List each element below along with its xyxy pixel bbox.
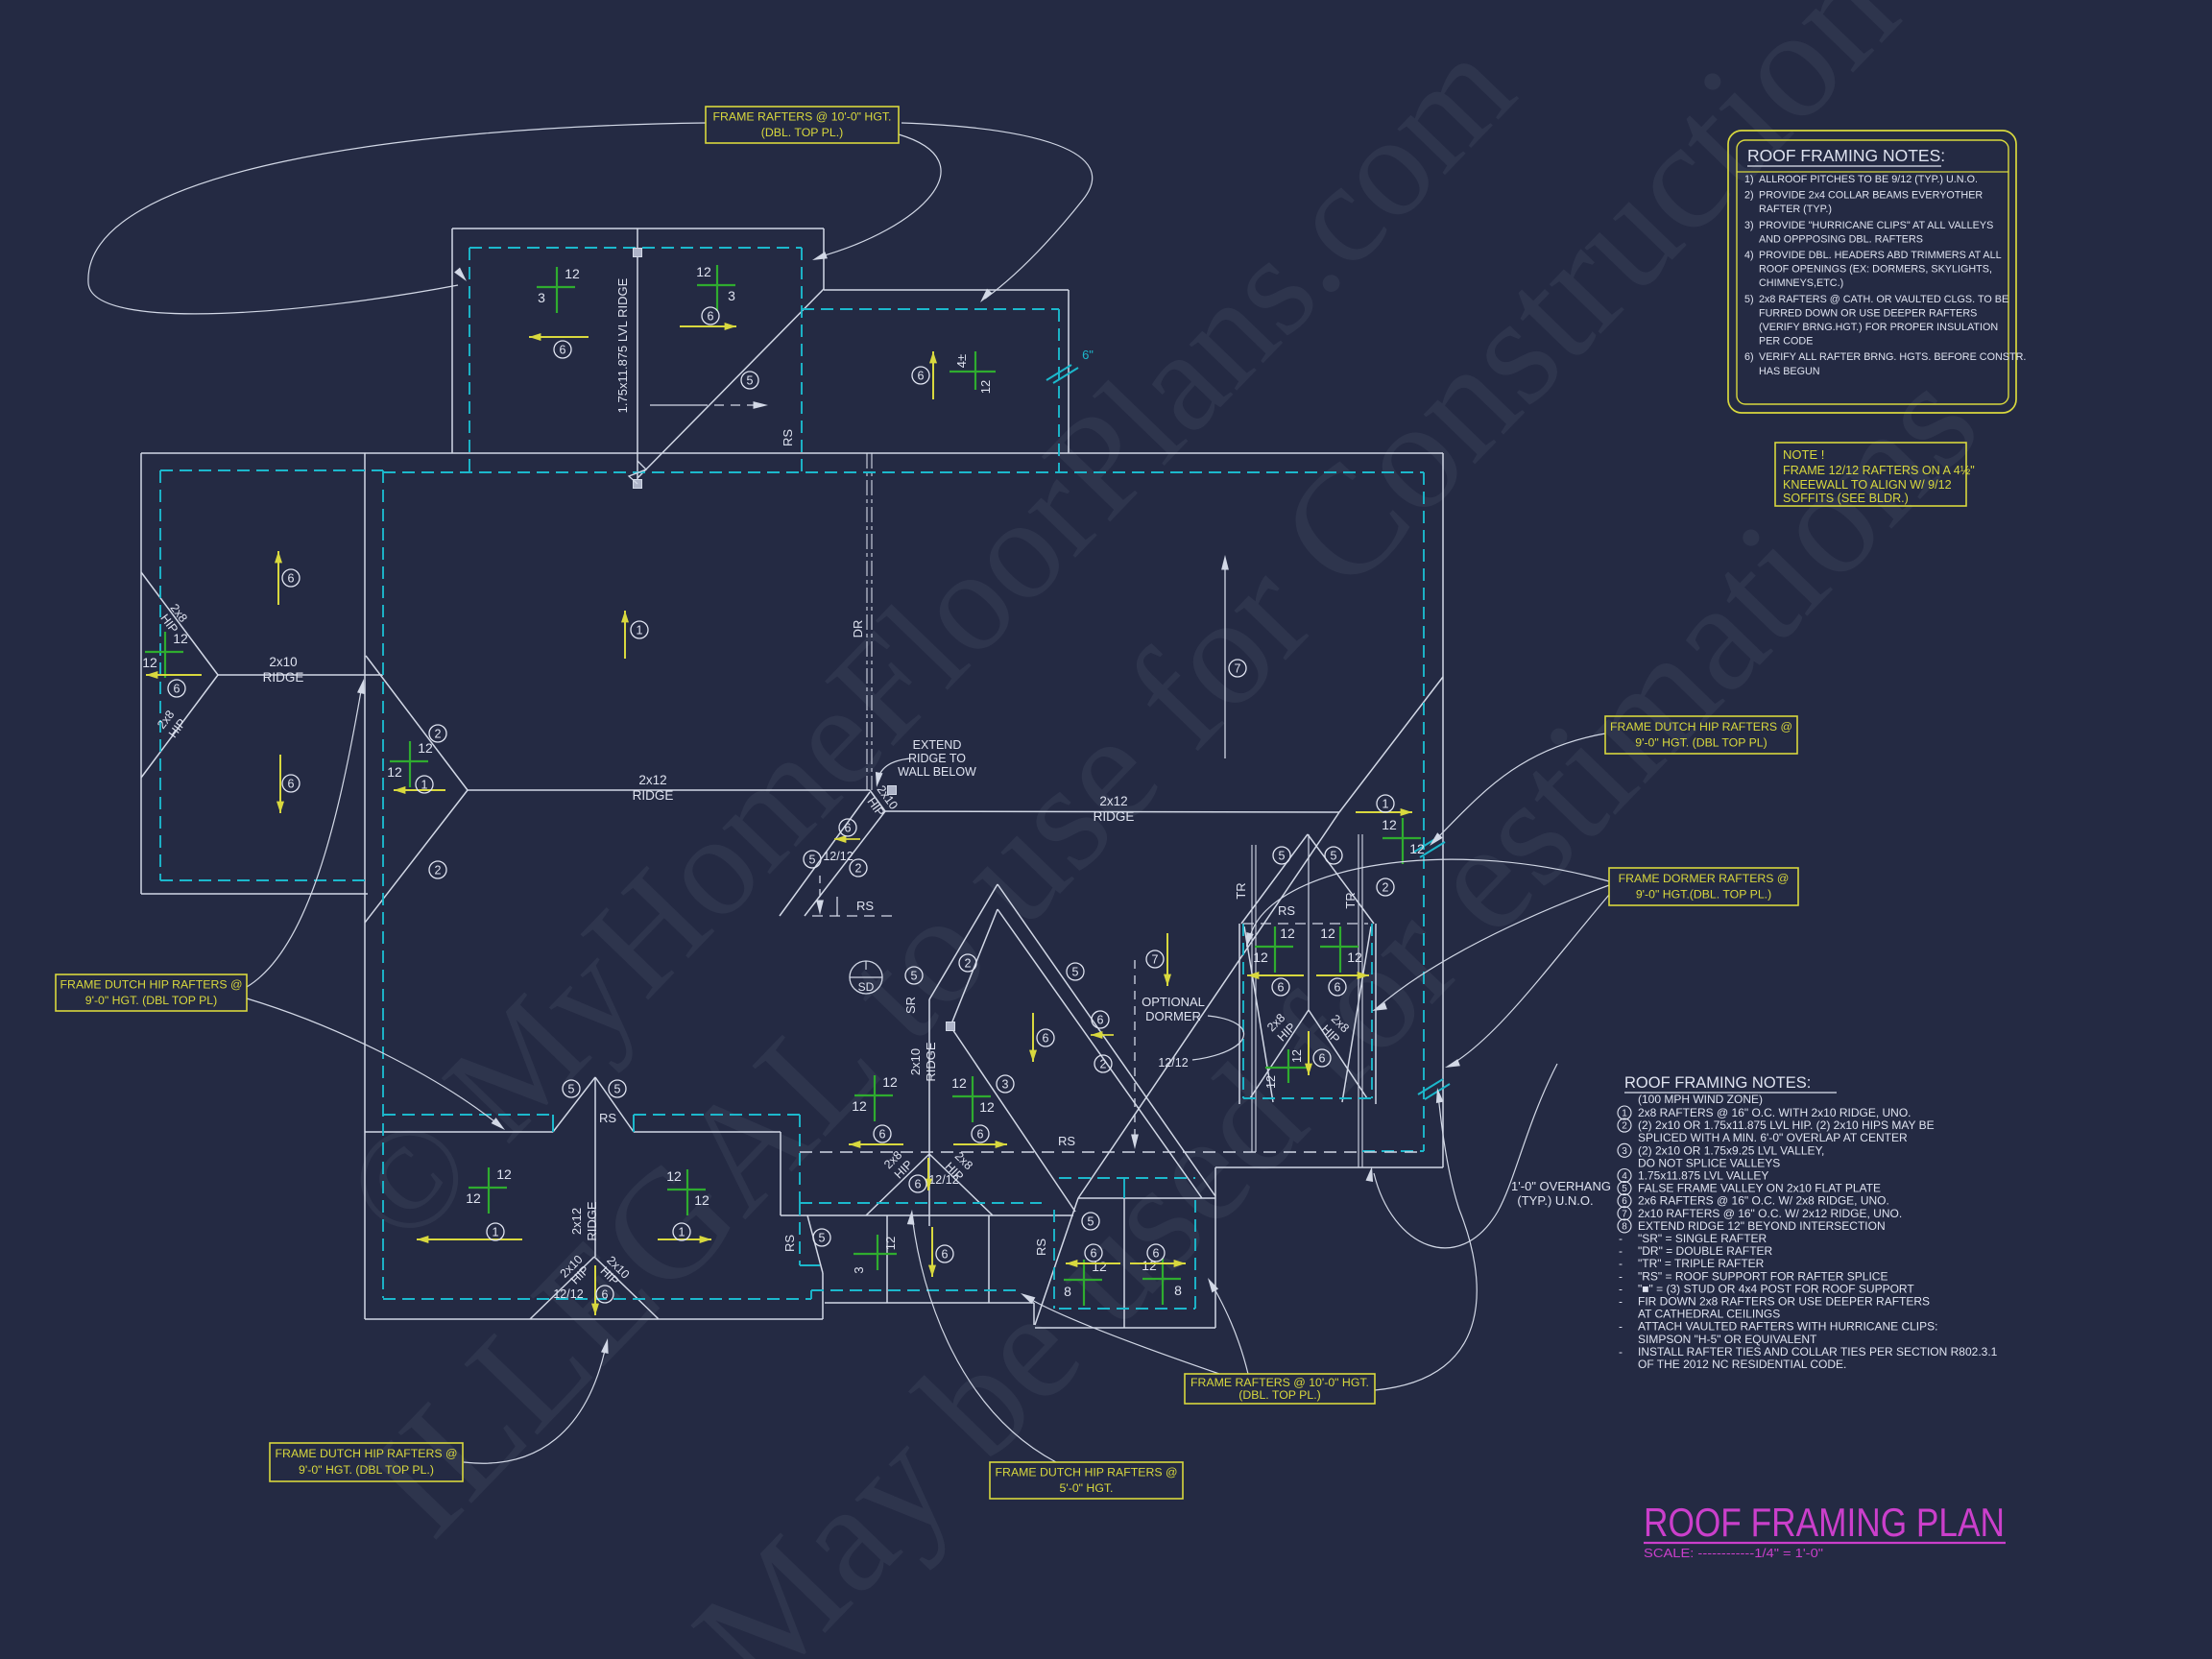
svg-text:3: 3 (538, 290, 545, 305)
svg-text:12: 12 (883, 1237, 898, 1250)
svg-text:EXTEND: EXTEND (913, 738, 962, 752)
svg-text:1): 1) (1744, 174, 1754, 185)
svg-text:RS: RS (781, 429, 795, 446)
svg-text:RIDGE: RIDGE (633, 788, 674, 803)
svg-text:SIMPSON "H-5" OR EQUIVALENT: SIMPSON "H-5" OR EQUIVALENT (1638, 1333, 1817, 1346)
svg-text:RIDGE: RIDGE (924, 1042, 938, 1082)
svg-text:6: 6 (942, 1248, 949, 1262)
svg-text:6): 6) (1744, 351, 1754, 363)
svg-text:12: 12 (1320, 926, 1335, 941)
svg-text:PROVIDE DBL. HEADERS ABD TRIMM: PROVIDE DBL. HEADERS ABD TRIMMERS AT ALL (1759, 250, 2002, 261)
svg-text:CHIMNEYS,ETC.): CHIMNEYS,ETC.) (1759, 277, 1843, 289)
svg-text:RS: RS (1034, 1238, 1048, 1256)
svg-text:FRAME DORMER RAFTERS @: FRAME DORMER RAFTERS @ (1619, 872, 1790, 885)
svg-text:12: 12 (1290, 1049, 1304, 1063)
svg-text:2: 2 (435, 728, 442, 741)
svg-text:12: 12 (696, 264, 711, 279)
svg-text:SD: SD (858, 980, 875, 994)
svg-text:(100 MPH WIND ZONE): (100 MPH WIND ZONE) (1638, 1093, 1763, 1106)
svg-text:FRAME RAFTERS @ 10'-0" HGT.: FRAME RAFTERS @ 10'-0" HGT. (713, 110, 892, 124)
svg-text:2): 2) (1744, 190, 1754, 202)
svg-text:FALSE FRAME VALLEY ON 2x10 FLA: FALSE FRAME VALLEY ON 2x10 FLAT PLATE (1638, 1182, 1881, 1195)
svg-text:5: 5 (1331, 850, 1337, 863)
svg-text:2: 2 (1622, 1121, 1627, 1132)
svg-text:6: 6 (918, 370, 925, 383)
svg-text:6: 6 (288, 778, 295, 791)
svg-text:SR: SR (903, 997, 918, 1014)
svg-text:AND OPPPOSING DBL. RAFTERS: AND OPPPOSING DBL. RAFTERS (1759, 233, 1923, 245)
svg-text:12: 12 (1409, 841, 1425, 856)
svg-text:PER CODE: PER CODE (1759, 336, 1813, 348)
svg-text:KNEEWALL TO ALIGN W/ 9/12: KNEEWALL TO ALIGN W/ 9/12 (1783, 478, 1952, 492)
svg-text:3: 3 (1622, 1146, 1627, 1157)
svg-text:12: 12 (1382, 817, 1397, 832)
svg-text:"RS" = ROOF SUPPORT FOR RAFT: "RS" = ROOF SUPPORT FOR RAFTER SPLICE (1638, 1269, 1887, 1283)
svg-text:2x10: 2x10 (908, 1048, 923, 1075)
svg-text:2x12: 2x12 (1099, 794, 1127, 808)
svg-text:RIDGE: RIDGE (585, 1201, 599, 1241)
svg-text:7: 7 (1235, 662, 1241, 676)
svg-text:2x8 RAFTERS @ 16" O.C. WITH 2x: 2x8 RAFTERS @ 16" O.C. WITH 2x10 RIDGE, … (1638, 1106, 1911, 1119)
svg-text:-: - (1619, 1345, 1623, 1358)
svg-text:5: 5 (1072, 966, 1079, 979)
svg-text:9'-0" HGT.(DBL. TOP PL.): 9'-0" HGT.(DBL. TOP PL.) (1636, 888, 1771, 902)
svg-text:ROOF FRAMING PLAN: ROOF FRAMING PLAN (1644, 1500, 2005, 1545)
svg-text:FRAME 12/12 RAFTERS ON A 4½": FRAME 12/12 RAFTERS ON A 4½" (1783, 464, 1975, 477)
svg-text:INSTALL RAFTER TIES AND COLLAR: INSTALL RAFTER TIES AND COLLAR TIES PER … (1638, 1345, 1998, 1358)
svg-text:6: 6 (1622, 1196, 1627, 1207)
svg-text:DR: DR (851, 620, 865, 638)
svg-text:12/12: 12/12 (1158, 1056, 1188, 1070)
svg-text:12: 12 (1253, 950, 1268, 965)
svg-text:-: - (1619, 1295, 1623, 1309)
svg-text:"TR" = TRIPLE RAFTER: "TR" = TRIPLE RAFTER (1638, 1257, 1765, 1270)
svg-text:12: 12 (979, 1099, 995, 1115)
svg-text:7: 7 (1622, 1209, 1627, 1219)
svg-text:EXTEND RIDGE 12" BEYOND INTERS: EXTEND RIDGE 12" BEYOND INTERSECTION (1638, 1219, 1886, 1233)
svg-text:OPTIONAL: OPTIONAL (1142, 995, 1205, 1009)
svg-text:2x10 RAFTERS @ 16" O.C. W/ 2x1: 2x10 RAFTERS @ 16" O.C. W/ 2x12 RIDGE, U… (1638, 1207, 1902, 1220)
svg-text:2x12: 2x12 (638, 773, 666, 787)
svg-text:5: 5 (809, 854, 816, 867)
svg-text:WALL BELOW: WALL BELOW (898, 765, 976, 779)
svg-text:12: 12 (694, 1192, 709, 1208)
svg-text:-: - (1619, 1320, 1623, 1334)
svg-text:2: 2 (965, 957, 972, 971)
svg-text:6: 6 (1278, 981, 1285, 995)
svg-text:SCALE: ------------1/4" = 1'-0: SCALE: ------------1/4" = 1'-0" (1644, 1546, 1823, 1560)
svg-text:2: 2 (855, 862, 862, 876)
svg-text:12: 12 (387, 764, 402, 780)
svg-text:6: 6 (708, 310, 714, 324)
svg-text:5): 5) (1744, 294, 1754, 305)
svg-text:12: 12 (951, 1075, 967, 1091)
svg-text:12: 12 (1264, 1075, 1278, 1089)
svg-text:5: 5 (568, 1083, 575, 1096)
svg-text:4±: 4± (954, 354, 969, 368)
svg-text:PROVIDE 2x4 COLLAR BEAMS EVERY: PROVIDE 2x4 COLLAR BEAMS EVERYOTHER (1759, 190, 1983, 202)
svg-text:DO NOT SPLICE VALLEYS: DO NOT SPLICE VALLEYS (1638, 1156, 1780, 1169)
svg-text:"■" = (3) STUD OR 4x4 POST: "■" = (3) STUD OR 4x4 POST FOR ROOF SUPP… (1638, 1282, 1914, 1295)
svg-text:12/12: 12/12 (928, 1173, 958, 1187)
svg-text:RS: RS (856, 899, 874, 913)
svg-text:12: 12 (1280, 926, 1295, 941)
svg-text:RS: RS (1278, 903, 1295, 918)
svg-text:6: 6 (560, 344, 566, 357)
svg-text:VERIFY ALL RAFTER BRNG. HGTS.: VERIFY ALL RAFTER BRNG. HGTS. BEFORE CON… (1759, 351, 2026, 363)
svg-text:ALLROOF PITCHES TO BE 9/12 (T: ALLROOF PITCHES TO BE 9/12 (TYP.) U.N.O. (1759, 174, 1978, 185)
svg-text:AT CATHEDRAL CEILINGS: AT CATHEDRAL CEILINGS (1638, 1308, 1780, 1321)
svg-text:3: 3 (852, 1266, 866, 1273)
svg-text:SOFFITS (SEE BLDR.): SOFFITS (SEE BLDR.) (1783, 492, 1909, 505)
svg-text:"DR" = DOUBLE RAFTER: "DR" = DOUBLE RAFTER (1638, 1244, 1773, 1258)
svg-text:-: - (1619, 1257, 1623, 1270)
svg-text:ATTACH VAULTED RAFTERS WITH HU: ATTACH VAULTED RAFTERS WITH HURRICANE CL… (1638, 1320, 1937, 1334)
svg-text:2: 2 (435, 864, 442, 878)
svg-text:FRAME DUTCH HIP RAFTERS @: FRAME DUTCH HIP RAFTERS @ (1610, 720, 1792, 733)
svg-text:NOTE !: NOTE ! (1783, 447, 1824, 462)
svg-text:HAS BEGUN: HAS BEGUN (1759, 366, 1820, 377)
svg-text:12: 12 (978, 380, 993, 394)
svg-text:5: 5 (911, 970, 918, 983)
svg-text:6": 6" (1082, 348, 1094, 362)
svg-text:6: 6 (879, 1128, 886, 1142)
svg-text:RIDGE: RIDGE (263, 670, 304, 685)
svg-text:TR: TR (1343, 892, 1358, 908)
svg-text:-: - (1619, 1282, 1623, 1295)
svg-text:12: 12 (142, 655, 157, 670)
svg-text:8: 8 (1064, 1284, 1071, 1299)
svg-text:12/12: 12/12 (553, 1287, 583, 1301)
svg-text:6: 6 (602, 1288, 609, 1302)
svg-text:-: - (1619, 1244, 1623, 1258)
svg-text:3: 3 (728, 288, 735, 303)
svg-text:1.75x11.875 LVL RIDGE: 1.75x11.875 LVL RIDGE (615, 277, 630, 413)
svg-text:2x6 RAFTERS @ 16" O.C. W/ 2x8: 2x6 RAFTERS @ 16" O.C. W/ 2x8 RIDGE, UNO… (1638, 1194, 1889, 1208)
svg-text:RS: RS (782, 1235, 797, 1252)
svg-text:2: 2 (1100, 1058, 1107, 1071)
svg-text:4: 4 (1622, 1171, 1627, 1182)
svg-text:1.75x11.875 LVL VALLEY: 1.75x11.875 LVL VALLEY (1638, 1169, 1768, 1183)
svg-text:SPLICED WITH A MIN. 6'-0" OVER: SPLICED WITH A MIN. 6'-0" OVERLAP AT CEN… (1638, 1131, 1908, 1144)
svg-text:12: 12 (173, 631, 188, 646)
svg-text:6: 6 (977, 1128, 984, 1142)
svg-text:OF THE 2012 NC RESIDENTIAL COD: OF THE 2012 NC RESIDENTIAL CODE. (1638, 1358, 1846, 1371)
svg-text:1: 1 (1382, 798, 1389, 811)
svg-text:-: - (1619, 1232, 1623, 1245)
svg-text:12: 12 (418, 740, 433, 756)
svg-text:RS: RS (599, 1111, 616, 1125)
svg-text:RIDGE TO: RIDGE TO (908, 752, 966, 765)
svg-text:2: 2 (1382, 881, 1389, 895)
svg-text:12: 12 (1347, 950, 1362, 965)
svg-text:RIDGE: RIDGE (1094, 809, 1135, 824)
svg-text:9'-0" HGT. (DBL TOP PL.): 9'-0" HGT. (DBL TOP PL.) (299, 1463, 434, 1477)
svg-text:(DBL. TOP PL.): (DBL. TOP PL.) (761, 126, 843, 139)
svg-text:12: 12 (852, 1098, 867, 1114)
svg-text:8: 8 (1174, 1283, 1182, 1298)
svg-text:RS: RS (1058, 1134, 1075, 1148)
svg-text:6: 6 (1334, 981, 1341, 995)
svg-text:6: 6 (915, 1178, 922, 1191)
svg-text:6: 6 (1043, 1032, 1049, 1046)
svg-text:2x12: 2x12 (569, 1208, 584, 1235)
svg-text:5: 5 (1622, 1184, 1627, 1194)
svg-text:6: 6 (288, 572, 295, 586)
svg-text:(DBL. TOP PL.): (DBL. TOP PL.) (1238, 1388, 1320, 1402)
svg-text:6: 6 (174, 683, 180, 696)
svg-text:5'-0" HGT.: 5'-0" HGT. (1060, 1481, 1114, 1495)
svg-text:1: 1 (679, 1226, 685, 1239)
svg-text:1: 1 (1622, 1109, 1627, 1119)
svg-text:9'-0" HGT. (DBL TOP PL): 9'-0" HGT. (DBL TOP PL) (1635, 736, 1767, 750)
svg-text:FIR DOWN 2x8 RAFTERS OR USE DE: FIR DOWN 2x8 RAFTERS OR USE DEEPER RAFTE… (1638, 1295, 1930, 1309)
svg-text:DORMER: DORMER (1145, 1009, 1201, 1023)
svg-text:FRAME DUTCH HIP RAFTERS @: FRAME DUTCH HIP RAFTERS @ (276, 1447, 458, 1460)
svg-text:(VERIFY BRNG.HGT.) FOR PROPER: (VERIFY BRNG.HGT.) FOR PROPER INSULATION (1759, 322, 1998, 333)
svg-text:12: 12 (496, 1166, 512, 1182)
svg-text:FRAME RAFTERS @ 10'-0" HGT.: FRAME RAFTERS @ 10'-0" HGT. (1190, 1376, 1369, 1389)
svg-text:7: 7 (1152, 953, 1159, 967)
svg-text:FRAME DUTCH HIP RAFTERS @: FRAME DUTCH HIP RAFTERS @ (60, 978, 243, 992)
svg-text:3: 3 (1002, 1078, 1009, 1092)
svg-text:6: 6 (1091, 1247, 1097, 1261)
svg-text:8: 8 (1622, 1221, 1627, 1232)
svg-text:ROOF OPENINGS (EX: DORMERS, SK: ROOF OPENINGS (EX: DORMERS, SKYLIGHTS, (1759, 264, 1992, 276)
svg-text:(2) 2x10 OR 1.75x9.25 LVL VALL: (2) 2x10 OR 1.75x9.25 LVL VALLEY, (1638, 1143, 1824, 1157)
svg-text:1: 1 (493, 1226, 499, 1239)
svg-text:1'-0" OVERHANG: 1'-0" OVERHANG (1511, 1179, 1611, 1193)
svg-text:"SR" = SINGLE RAFTER: "SR" = SINGLE RAFTER (1638, 1232, 1767, 1245)
svg-text:4): 4) (1744, 250, 1754, 261)
svg-text:1: 1 (421, 779, 428, 792)
svg-text:2x10: 2x10 (269, 655, 297, 669)
svg-text:6: 6 (1153, 1247, 1160, 1261)
svg-text:12: 12 (565, 266, 580, 281)
svg-text:(TYP.) U.N.O.: (TYP.) U.N.O. (1517, 1193, 1593, 1208)
svg-text:9'-0" HGT. (DBL TOP PL): 9'-0" HGT. (DBL TOP PL) (85, 994, 217, 1007)
svg-text:5: 5 (819, 1232, 826, 1245)
svg-text:5: 5 (1088, 1215, 1094, 1229)
svg-text:6: 6 (1319, 1052, 1326, 1066)
svg-text:5: 5 (1279, 850, 1286, 863)
svg-text:(2) 2x10 OR 1.75x11.875 LVL HI: (2) 2x10 OR 1.75x11.875 LVL HIP. (2) 2x1… (1638, 1118, 1935, 1132)
svg-text:6: 6 (1097, 1014, 1104, 1027)
svg-text:2x8 RAFTERS @ CATH. OR VAULTED: 2x8 RAFTERS @ CATH. OR VAULTED CLGS. TO … (1759, 294, 2008, 305)
svg-text:5: 5 (747, 374, 754, 388)
svg-text:ROOF FRAMING NOTES:: ROOF FRAMING NOTES: (1747, 146, 1945, 165)
svg-text:12: 12 (666, 1168, 682, 1184)
svg-text:5: 5 (614, 1083, 621, 1096)
svg-text:12: 12 (882, 1074, 898, 1090)
svg-text:1: 1 (637, 624, 643, 637)
svg-text:3): 3) (1744, 220, 1754, 231)
svg-text:6: 6 (845, 822, 852, 835)
svg-text:RAFTER (TYP.): RAFTER (TYP.) (1759, 204, 1832, 215)
svg-text:-: - (1619, 1269, 1623, 1283)
svg-text:FRAME DUTCH HIP RAFTERS @: FRAME DUTCH HIP RAFTERS @ (996, 1466, 1178, 1479)
svg-text:TR: TR (1234, 882, 1248, 899)
svg-text:ROOF FRAMING NOTES:: ROOF FRAMING NOTES: (1624, 1074, 1811, 1092)
svg-text:PROVIDE "HURRICANE CLIPS" AT A: PROVIDE "HURRICANE CLIPS" AT ALL VALLEYS (1759, 220, 1993, 231)
svg-text:FURRED DOWN OR USE DEEPER RAFT: FURRED DOWN OR USE DEEPER RAFTERS (1759, 307, 1977, 319)
svg-text:12/12: 12/12 (823, 850, 853, 863)
svg-text:12: 12 (466, 1190, 481, 1206)
